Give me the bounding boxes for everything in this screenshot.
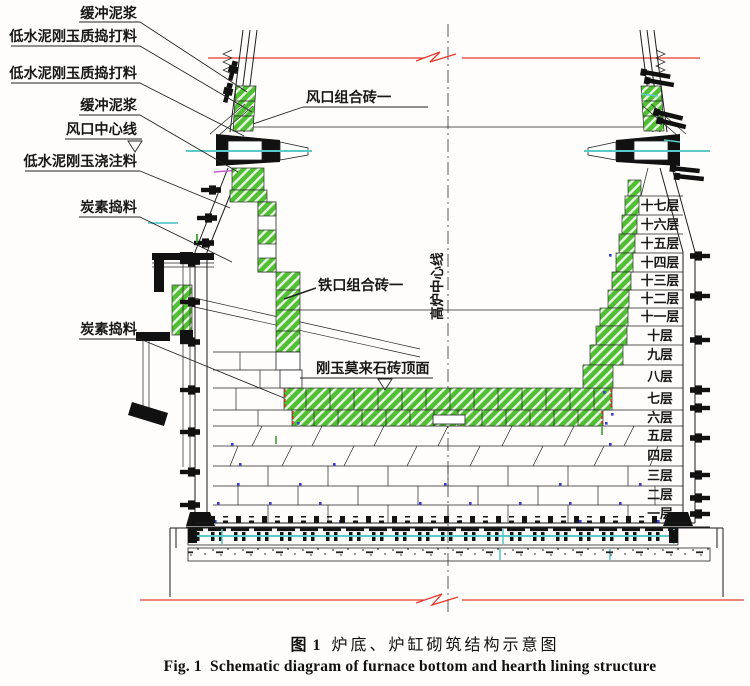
caption-zh-title: 炉底、炉缸砌筑结构示意图 xyxy=(332,637,560,654)
corundum-mullite-pad xyxy=(276,388,612,444)
caption-en: Fig. 1 Schematic diagram of furnace bott… xyxy=(60,658,750,676)
layer-label-5: 五层 xyxy=(647,429,673,443)
taphole-combination-brick xyxy=(276,272,300,352)
figure-page: 高炉中心线 xyxy=(0,0,750,686)
taphole-platform xyxy=(128,223,214,467)
layer-label-12: 十二层 xyxy=(641,291,680,306)
callout-tuyere-centerline: 风口中心线 xyxy=(66,121,137,138)
pad-center-key-brick xyxy=(433,415,465,424)
tuyere-surround-brick-left xyxy=(233,86,256,131)
layer-label-9: 九层 xyxy=(646,348,673,362)
green-joint-ticks xyxy=(276,427,602,444)
callout-buffer-grout-2: 缓冲泥浆 xyxy=(80,97,138,114)
caption-en-fig-number: Fig. 1 xyxy=(164,658,202,675)
callout-pad-top: 刚玉莫来石砖顶面 xyxy=(316,360,430,377)
callout-taphole-brick: 铁口组合砖一 xyxy=(318,277,403,294)
layer-label-14: 十四层 xyxy=(641,255,680,270)
left-wall xyxy=(128,30,312,526)
furnace-lining-diagram: 高炉中心线 xyxy=(0,0,750,620)
break-mark-top xyxy=(416,52,456,62)
layer-label-6: 六层 xyxy=(647,410,673,425)
tuyere-centerline-marker-icon xyxy=(128,141,142,152)
layer-labels: 十七层 十六层 十五层 十四层 十三层 十二层 十一层 十层 九层 八层 七层 … xyxy=(641,198,680,521)
layer-label-4: 四层 xyxy=(647,449,673,463)
right-green-staircase xyxy=(583,180,641,388)
caption-zh: 图 1炉底、炉缸砌筑结构示意图 xyxy=(90,631,750,655)
callout-buffer-grout-1: 缓冲泥浆 xyxy=(80,5,138,22)
callout-ramming-mix-2: 低水泥刚玉质捣打料 xyxy=(8,65,138,82)
base-foundation xyxy=(170,516,723,597)
caption-zh-fig-number: 图 1 xyxy=(290,637,321,654)
layer-label-16: 十六层 xyxy=(641,217,680,232)
layer-label-17: 十七层 xyxy=(641,198,680,213)
callout-castable: 低水泥刚玉浇注料 xyxy=(22,153,137,170)
caption-en-title: Schematic diagram of furnace bottom and … xyxy=(210,658,656,675)
left-green-bricks xyxy=(172,168,302,388)
callout-tuyere-brick: 风口组合砖一 xyxy=(306,89,391,106)
layer-label-15: 十五层 xyxy=(641,236,680,251)
layer-label-10: 十层 xyxy=(647,328,673,343)
callout-carbon-ramming-2: 炭素捣料 xyxy=(80,321,138,338)
layer-label-2: 二层 xyxy=(647,488,673,502)
layer-label-11: 十一层 xyxy=(641,309,680,324)
callout-ramming-mix-1: 低水泥刚玉质捣打料 xyxy=(8,28,138,45)
layer-label-1: 一层 xyxy=(647,507,673,521)
anchor-row xyxy=(210,516,658,523)
furnace-centerline: 高炉中心线 xyxy=(429,24,448,614)
layer-label-7: 七层 xyxy=(647,392,673,406)
layer-label-8: 八层 xyxy=(646,370,673,384)
taphole-exterior-ramming xyxy=(172,285,192,335)
callout-carbon-ramming-1: 炭素捣料 xyxy=(80,199,138,216)
concrete-band xyxy=(188,548,710,561)
layer-label-13: 十三层 xyxy=(641,273,680,288)
layer-label-3: 三层 xyxy=(647,469,673,483)
